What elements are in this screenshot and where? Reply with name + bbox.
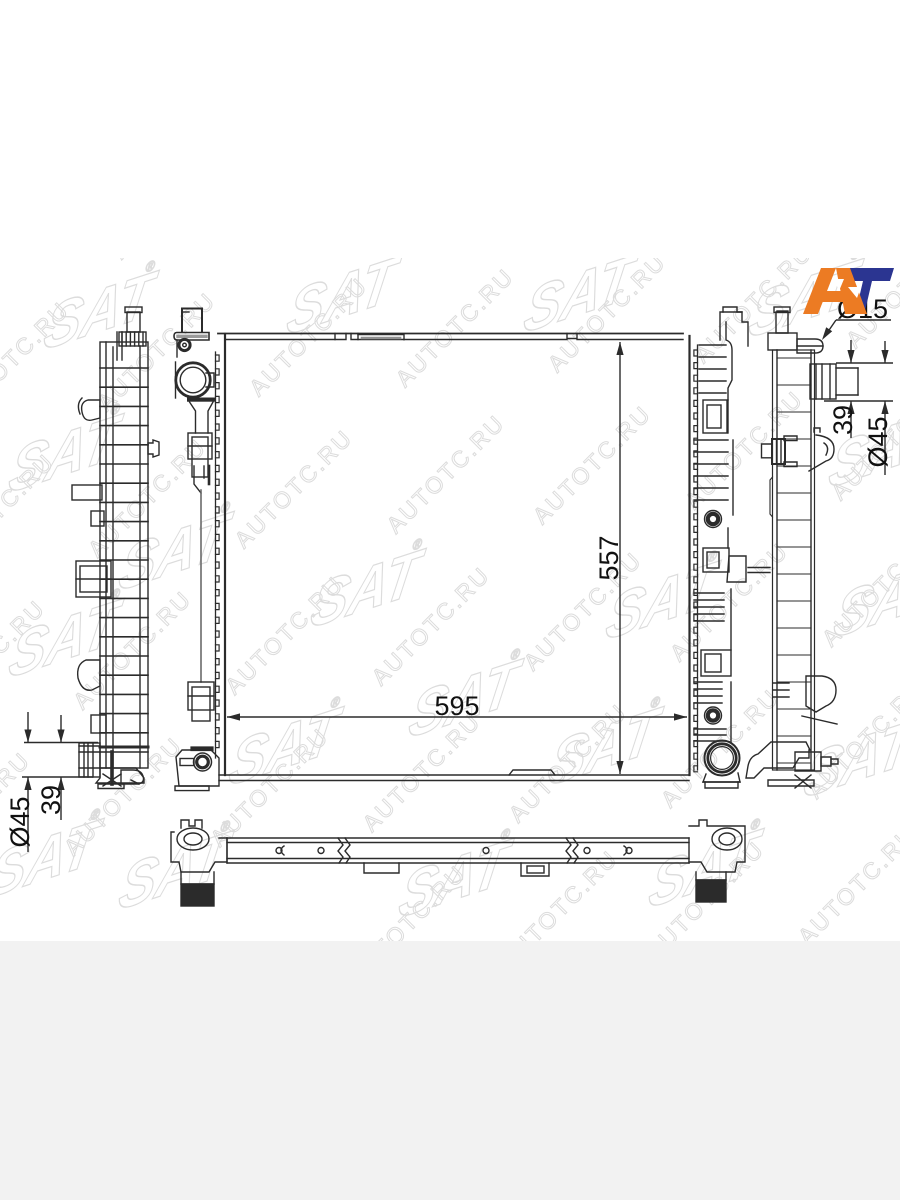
svg-text:39: 39 xyxy=(36,785,66,815)
svg-text:Ø45: Ø45 xyxy=(863,416,893,467)
svg-text:557: 557 xyxy=(594,535,624,580)
svg-text:Ø45: Ø45 xyxy=(5,796,35,847)
svg-text:39: 39 xyxy=(828,405,858,435)
svg-text:595: 595 xyxy=(434,691,479,721)
